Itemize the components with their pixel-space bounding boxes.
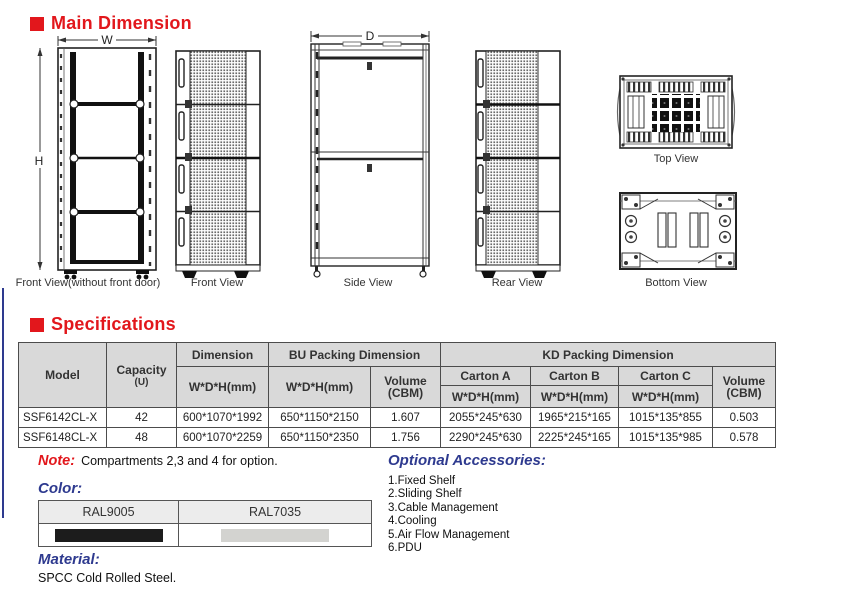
subheader-carton-c: Carton C xyxy=(619,367,713,386)
bottom-view-drawing xyxy=(612,189,744,278)
side-view-label: Side View xyxy=(308,277,428,289)
cell-model: SSF6142CL-X xyxy=(19,408,107,428)
subheader-carton-a: Carton A xyxy=(441,367,531,386)
top-view-label: Top View xyxy=(616,153,736,165)
capacity-label: Capacity xyxy=(116,363,166,377)
volume-unit-label: (CBM) xyxy=(371,387,440,399)
accessory-item: 1.Fixed Shelf xyxy=(388,475,546,488)
table-row: SSF6148CL-X 48 600*1070*2259 650*1150*23… xyxy=(19,428,776,448)
capacity-unit-label: (U) xyxy=(107,377,176,388)
subheader-dim-wdh: W*D*H(mm) xyxy=(177,367,269,408)
accessory-item: 4.Cooling xyxy=(388,515,546,528)
color-heading: Color: xyxy=(38,480,82,497)
col-header-capacity: Capacity (U) xyxy=(107,343,177,408)
dim-d-label: D xyxy=(366,29,375,43)
rear-view-label: Rear View xyxy=(457,277,577,289)
subheader-carton-c-wdh: W*D*H(mm) xyxy=(619,386,713,408)
accessory-item: 5.Air Flow Management xyxy=(388,529,546,542)
specifications-title: Specifications xyxy=(51,314,176,335)
accessory-item: 6.PDU xyxy=(388,542,546,555)
cell-bu-wdh: 650*1150*2350 xyxy=(269,428,371,448)
color-swatch-cell xyxy=(179,524,372,547)
volume-unit-label: (CBM) xyxy=(713,387,775,399)
cell-bu-wdh: 650*1150*2150 xyxy=(269,408,371,428)
accessory-item: 2.Sliding Shelf xyxy=(388,488,546,501)
accessory-item: 3.Cable Management xyxy=(388,502,546,515)
cell-kd-volume: 0.578 xyxy=(713,428,776,448)
rear-view-drawing xyxy=(472,45,564,285)
cell-dim-wdh: 600*1070*2259 xyxy=(177,428,269,448)
col-header-kd-packing: KD Packing Dimension xyxy=(441,343,776,367)
main-dimension-heading: Main Dimension xyxy=(30,13,192,34)
page-edge-line xyxy=(2,288,4,518)
cell-dim-wdh: 600*1070*1992 xyxy=(177,408,269,428)
side-view-drawing: D xyxy=(305,28,435,285)
subheader-carton-a-wdh: W*D*H(mm) xyxy=(441,386,531,408)
dim-h-label: H xyxy=(35,154,44,168)
ral9005-swatch xyxy=(55,529,163,542)
cell-carton-a: 2055*245*630 xyxy=(441,408,531,428)
bottom-view-label: Bottom View xyxy=(616,277,736,289)
ral7035-swatch xyxy=(221,529,329,542)
cell-carton-b: 1965*215*165 xyxy=(531,408,619,428)
cell-carton-b: 2225*245*165 xyxy=(531,428,619,448)
subheader-carton-b: Carton B xyxy=(531,367,619,386)
front-view-label: Front View xyxy=(157,277,277,289)
specifications-heading: Specifications xyxy=(30,314,176,335)
color-name-ral9005: RAL9005 xyxy=(39,501,179,524)
subheader-bu-volume: Volume (CBM) xyxy=(371,367,441,408)
top-view-drawing xyxy=(612,72,740,157)
col-header-bu-packing: BU Packing Dimension xyxy=(269,343,441,367)
specifications-table: Model Capacity (U) Dimension BU Packing … xyxy=(18,342,776,448)
material-text: SPCC Cold Rolled Steel. xyxy=(38,571,176,585)
material-heading: Material: xyxy=(38,551,100,568)
col-header-dimension: Dimension xyxy=(177,343,269,367)
front-view-no-door-label: Front View(without front door) xyxy=(8,277,168,289)
spec-sheet-page: Main Dimension W H xyxy=(0,0,867,589)
subheader-kd-volume: Volume (CBM) xyxy=(713,367,776,408)
subheader-carton-b-wdh: W*D*H(mm) xyxy=(531,386,619,408)
color-table: RAL9005 RAL7035 xyxy=(38,500,372,547)
red-square-icon xyxy=(30,318,44,332)
note-text: Compartments 2,3 and 4 for option. xyxy=(81,454,278,468)
cell-kd-volume: 0.503 xyxy=(713,408,776,428)
cell-capacity: 42 xyxy=(107,408,177,428)
cell-bu-volume: 1.607 xyxy=(371,408,441,428)
color-swatch-cell xyxy=(39,524,179,547)
col-header-model: Model xyxy=(19,343,107,408)
accessories-list: 1.Fixed Shelf 2.Sliding Shelf 3.Cable Ma… xyxy=(388,475,546,555)
note-label: Note: xyxy=(38,453,75,469)
color-name-ral7035: RAL7035 xyxy=(179,501,372,524)
front-view-drawing xyxy=(172,45,264,285)
note-row: Note:Compartments 2,3 and 4 for option. xyxy=(38,453,278,469)
optional-accessories: Optional Accessories: 1.Fixed Shelf 2.Sl… xyxy=(388,452,546,555)
cell-bu-volume: 1.756 xyxy=(371,428,441,448)
cell-carton-c: 1015*135*855 xyxy=(619,408,713,428)
cell-capacity: 48 xyxy=(107,428,177,448)
cell-carton-a: 2290*245*630 xyxy=(441,428,531,448)
cell-carton-c: 1015*135*985 xyxy=(619,428,713,448)
dim-w-label: W xyxy=(101,33,113,47)
subheader-bu-wdh: W*D*H(mm) xyxy=(269,367,371,408)
accessories-heading: Optional Accessories: xyxy=(388,452,546,469)
red-square-icon xyxy=(30,17,44,31)
cell-model: SSF6148CL-X xyxy=(19,428,107,448)
table-row: SSF6142CL-X 42 600*1070*1992 650*1150*21… xyxy=(19,408,776,428)
main-dimension-title: Main Dimension xyxy=(51,13,192,34)
front-view-no-door-drawing: W H xyxy=(30,32,162,287)
